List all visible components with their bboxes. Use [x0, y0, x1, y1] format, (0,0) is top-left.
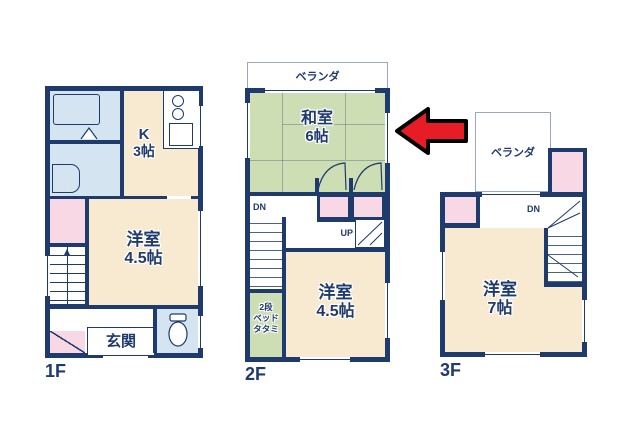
japanese-room-label: 和室 6帖	[282, 110, 352, 146]
dn-label-2f: DN	[253, 202, 266, 212]
red-arrow	[393, 102, 473, 160]
bathtub	[53, 94, 100, 125]
floorplan-3f: DN 洋室 7帖	[440, 192, 587, 357]
window-marker	[582, 300, 587, 342]
closet-2f-left	[317, 194, 351, 220]
veranda-3f-label: ベランダ	[476, 147, 550, 160]
stove-burner-icon	[172, 95, 184, 107]
window-marker	[198, 106, 203, 146]
window-marker	[485, 352, 540, 357]
western-room-2f-label: 洋室 4.5帖	[286, 283, 385, 321]
dn-label-3f: DN	[518, 204, 540, 214]
window-marker	[245, 103, 250, 158]
floor-label-3f: 3F	[440, 360, 461, 381]
bath-door-icon	[80, 127, 98, 140]
up-label-2f: UP	[330, 228, 353, 238]
closet-entrance	[50, 331, 85, 353]
western-room-3f-label: 洋室 7帖	[445, 280, 555, 318]
washbasin	[52, 164, 80, 193]
closet-1f	[50, 199, 85, 243]
room-bathroom	[50, 91, 120, 140]
veranda-3f: ベランダ	[475, 112, 551, 192]
window-marker	[385, 113, 390, 163]
stair-diagonals-3f	[544, 197, 582, 282]
stair-arrow-icon	[64, 249, 70, 255]
floor-label-2f: 2F	[245, 364, 266, 385]
entrance-label: 玄関	[106, 333, 136, 350]
stair-diagonals	[356, 220, 384, 247]
window-marker	[300, 357, 350, 362]
staircase-1f	[50, 247, 85, 304]
kitchen-label: K 3帖	[124, 126, 164, 159]
toilet-room	[157, 309, 198, 353]
veranda-2f-label: ベランダ	[296, 71, 340, 84]
window-marker	[103, 353, 148, 358]
stove-burner-icon	[172, 108, 184, 120]
wall-segment	[349, 178, 353, 192]
floor-label-1f: 1F	[45, 361, 66, 382]
entrance-label-box: 玄関	[87, 327, 155, 356]
window-marker	[482, 192, 540, 197]
floorplan-2f: 和室 6帖 DN UP 洋室 4.5帖 2段 ベッド タタミ	[245, 88, 390, 362]
window-marker	[45, 256, 50, 296]
staircase-up-2f	[355, 219, 385, 248]
closet-3f-top-right	[548, 148, 587, 196]
floorplan-1f: K 3帖 洋室 4.5帖 UP 玄関	[45, 86, 203, 358]
window-marker	[198, 316, 203, 348]
bunk-bed-label: 2段 ベッド タタミ	[250, 302, 282, 335]
toilet-icon	[166, 313, 190, 349]
closet-3f-left	[445, 197, 476, 223]
closet-2f-right	[351, 194, 385, 220]
wall-segment	[315, 178, 319, 192]
kitchen-sink-icon	[169, 123, 193, 146]
western-room-1f-label: 洋室 4.5帖	[89, 230, 198, 268]
window-marker	[385, 283, 390, 338]
window-marker	[440, 252, 445, 300]
staircase-down-2f	[250, 215, 282, 289]
kitchen-counter	[163, 91, 199, 149]
window-marker	[198, 211, 203, 286]
room-washroom	[50, 144, 120, 196]
